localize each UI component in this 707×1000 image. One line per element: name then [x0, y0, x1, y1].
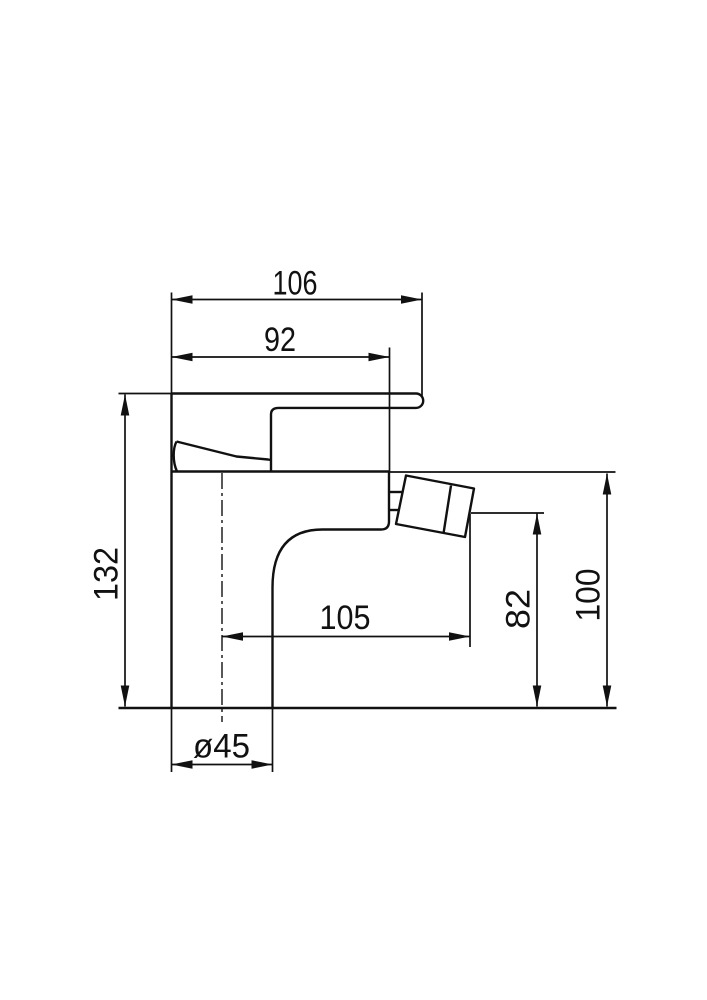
arrowhead-left: [222, 632, 243, 641]
dim-label-spout-reach: 105: [320, 599, 371, 637]
arrowhead-bottom: [533, 686, 542, 707]
dim-label-overall-width: 106: [273, 265, 318, 303]
dimension-spout-reach: 105: [222, 514, 470, 648]
cartridge-escutcheon-left-edge: [174, 442, 177, 472]
faucet-dimension-drawing: 106 92 132 100: [0, 0, 707, 1000]
faucet-outline: [119, 393, 617, 708]
cartridge-escutcheon-top-slope: [177, 442, 272, 461]
arrowhead-right: [449, 632, 470, 641]
dim-label-spout-outlet-height: 82: [500, 589, 538, 629]
dim-label-base-diameter: ø45: [193, 728, 250, 766]
arrowhead-top: [603, 474, 612, 495]
dimension-overall-height: 132: [88, 394, 172, 707]
arrowhead-left: [172, 760, 193, 769]
arrowhead-top: [533, 514, 542, 535]
arrowhead-right: [252, 760, 273, 769]
arrowhead-bottom: [121, 686, 130, 707]
arrowhead-top: [121, 395, 130, 416]
arrowhead-left: [172, 353, 193, 362]
arrowhead-right: [369, 353, 390, 362]
dimension-overall-width: 106: [172, 265, 423, 398]
technical-drawing-canvas: 106 92 132 100: [0, 0, 707, 1000]
lever-handle: [172, 393, 424, 471]
body-right-profile: [273, 472, 390, 709]
arrowhead-bottom: [603, 686, 612, 707]
spout-aerator-divider: [444, 486, 452, 534]
arrowhead-left: [172, 295, 193, 304]
dim-label-overall-height: 132: [88, 547, 126, 601]
spout-body: [396, 476, 474, 538]
dimension-spout-outlet-height: 82: [471, 513, 544, 707]
dim-label-deck-height: 100: [570, 569, 608, 622]
arrowhead-right: [401, 295, 422, 304]
dim-label-deck-width: 92: [264, 321, 296, 359]
